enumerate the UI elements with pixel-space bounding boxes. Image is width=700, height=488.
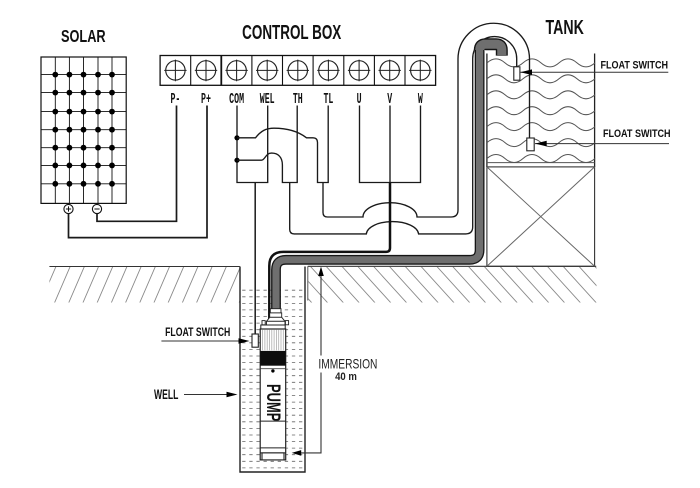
svg-text:CONTROL BOX: CONTROL BOX [242,20,342,44]
svg-text:TANK: TANK [546,15,585,38]
svg-text:V: V [387,90,392,107]
svg-text:TH: TH [293,90,303,107]
svg-text:P-: P- [170,90,180,107]
svg-text:U: U [357,90,362,107]
svg-text:FLOAT SWITCH: FLOAT SWITCH [601,60,669,72]
svg-text:40 m: 40 m [335,372,357,384]
svg-text:FLOAT SWITCH: FLOAT SWITCH [165,326,230,340]
svg-text:P+: P+ [201,90,211,107]
svg-text:SOLAR: SOLAR [61,27,106,46]
svg-text:PUMP: PUMP [262,384,284,421]
svg-text:COM: COM [229,90,244,107]
svg-text:TL: TL [323,90,333,107]
svg-text:W: W [418,90,423,107]
svg-text:IMMERSION: IMMERSION [318,356,377,372]
svg-text:FLOAT SWITCH: FLOAT SWITCH [603,128,671,140]
svg-text:WEL: WEL [260,90,275,107]
svg-text:WELL: WELL [154,388,178,402]
